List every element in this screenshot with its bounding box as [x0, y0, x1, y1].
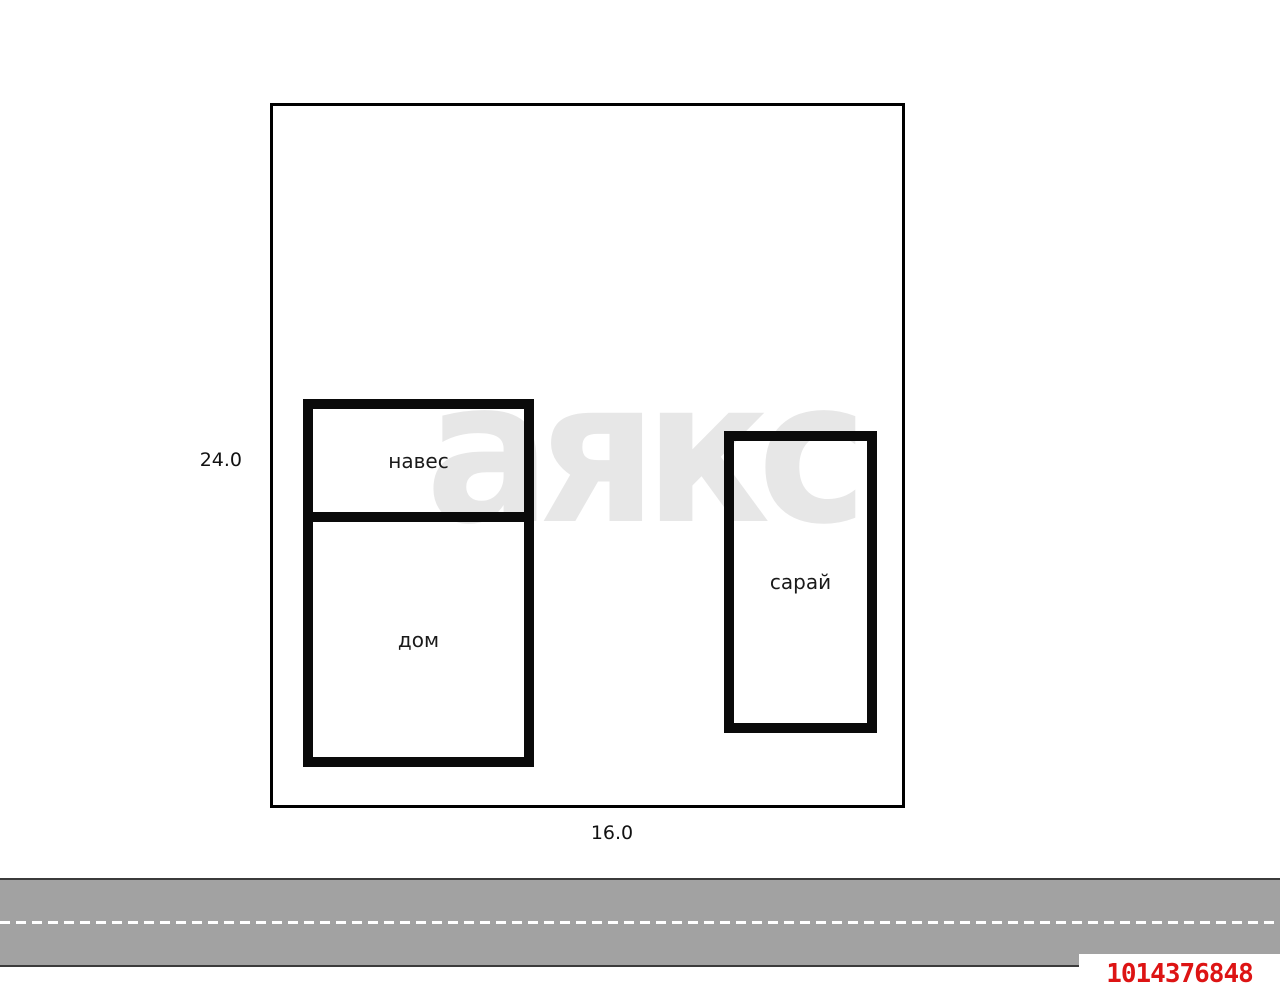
canopy-section: навес — [313, 409, 524, 512]
listing-id-box: 1014376848 — [1079, 954, 1280, 993]
site-plan: { "watermark_text": "аякс", "dimensions"… — [0, 0, 1280, 993]
road-center-dashed-line — [0, 921, 1280, 924]
building-barn: сарай — [724, 431, 877, 733]
house-section: дом — [313, 522, 524, 757]
barn-label: сарай — [770, 570, 831, 594]
canopy-label: навес — [388, 449, 448, 473]
house-divider-wall — [313, 512, 524, 522]
dimension-label-width: 16.0 — [570, 822, 654, 844]
dimension-label-height: 24.0 — [170, 449, 242, 471]
building-house: навес дом — [303, 399, 534, 767]
listing-id: 1014376848 — [1106, 959, 1253, 989]
house-label: дом — [398, 628, 439, 652]
